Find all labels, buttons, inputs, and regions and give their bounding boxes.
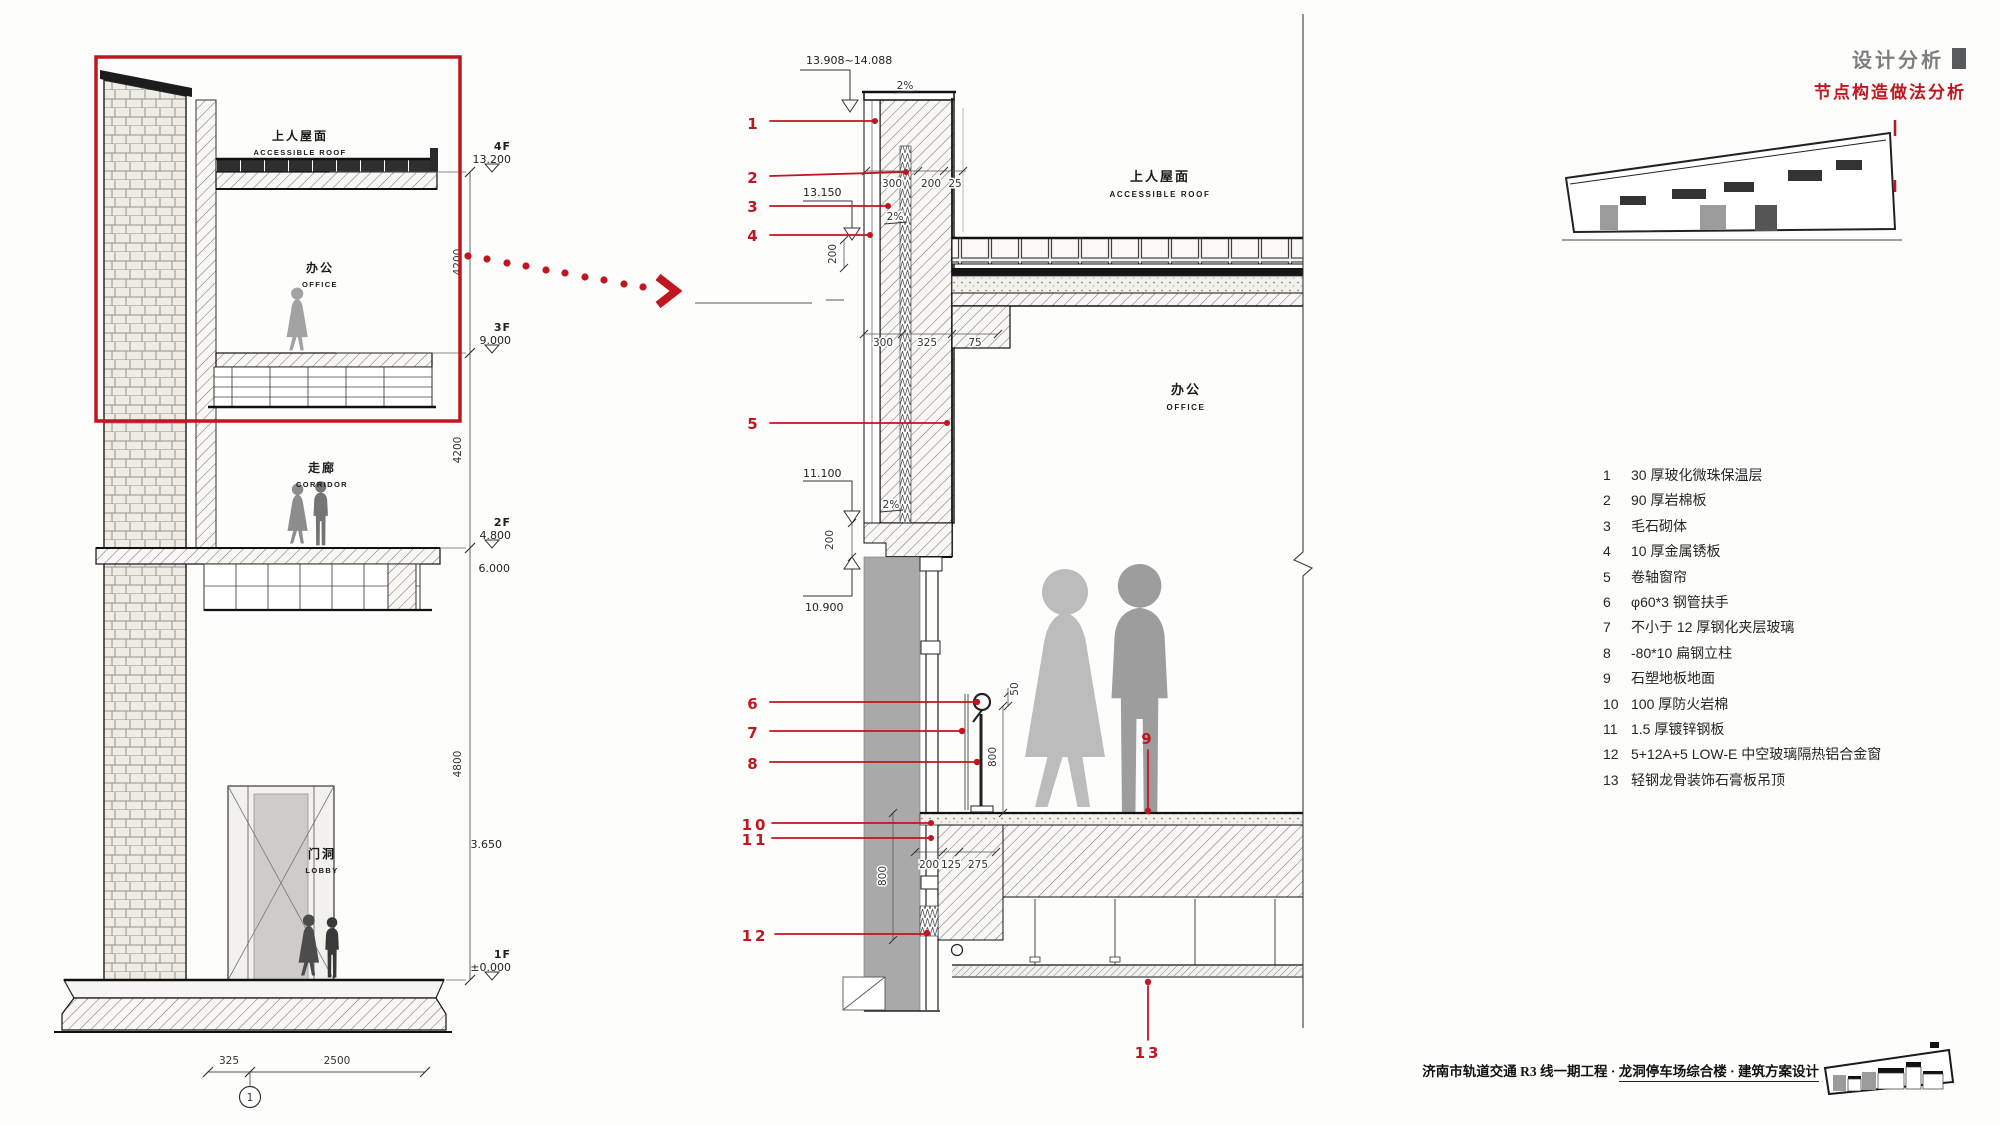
legend-item: 130 厚玻化微珠保温层 xyxy=(1603,467,1881,492)
legend-item: 410 厚金属锈板 xyxy=(1603,543,1881,568)
window-assembly xyxy=(843,557,942,1011)
svg-text:4: 4 xyxy=(747,227,760,245)
roller-blind xyxy=(864,557,920,1011)
svg-text:9: 9 xyxy=(1141,730,1154,748)
figure-detail-woman xyxy=(1025,569,1105,807)
dim-2500: 2500 xyxy=(324,1055,351,1067)
legend-item: 9石塑地板地面 xyxy=(1603,670,1881,695)
dim-parapet-height: 200 xyxy=(827,236,848,272)
project-title-part1: 济南市轨道交通 R3 线一期工程 · xyxy=(1422,1064,1615,1079)
label-lobby-en: LOBBY xyxy=(305,866,338,875)
svg-text:800: 800 xyxy=(877,866,889,886)
svg-text:200: 200 xyxy=(921,178,941,190)
svg-text:800: 800 xyxy=(987,747,999,767)
dim-rail-offset: 50 xyxy=(1004,682,1021,710)
label-corridor-en: CORRIDOR xyxy=(296,480,348,489)
axis-label: 1 xyxy=(247,1092,254,1104)
figure-corridor-man xyxy=(313,481,327,545)
svg-text:13.150: 13.150 xyxy=(803,186,842,199)
svg-text:325: 325 xyxy=(917,337,937,349)
svg-text:12: 12 xyxy=(742,927,769,945)
figure-detail-man xyxy=(1112,564,1168,813)
dim-story-3: 4800 xyxy=(452,751,464,778)
inner-wall-leaf xyxy=(196,100,216,554)
label-lobby-cn: 门洞 xyxy=(308,846,336,861)
svg-text:50: 50 xyxy=(1009,682,1021,695)
dim-story-2: 4200 xyxy=(452,437,464,464)
svg-text:6: 6 xyxy=(747,695,760,713)
svg-text:13: 13 xyxy=(1135,1044,1162,1062)
label-corridor-cn: 走廊 xyxy=(308,460,336,475)
legend-item: 13轻钢龙骨装饰石膏板吊顶 xyxy=(1603,772,1881,797)
svg-text:8: 8 xyxy=(747,755,760,773)
left-section-drawing: 上人屋面 ACCESSIBLE ROOF 办公 OFFICE 走廊 CORRID… xyxy=(54,57,844,1108)
level-11100: 11.100 xyxy=(803,467,860,523)
figure-corridor-woman xyxy=(288,484,308,544)
label-roof-cn: 上人屋面 xyxy=(272,128,328,143)
svg-text:4F: 4F xyxy=(494,140,511,153)
drawing-sheet: 上人屋面 ACCESSIBLE ROOF 办公 OFFICE 走廊 CORRID… xyxy=(0,0,2000,1125)
window-lintel xyxy=(864,523,952,557)
svg-text:25: 25 xyxy=(948,178,961,190)
svg-text:11: 11 xyxy=(742,831,769,849)
title-block-square-icon xyxy=(1952,48,1966,69)
dim-window-head: 200 xyxy=(824,519,856,561)
level-mark-1f: 1F ±0.000 xyxy=(446,948,511,980)
svg-text:75: 75 xyxy=(968,337,981,349)
stone-wall xyxy=(100,70,216,998)
project-title-part2: 龙洞停车场综合楼 · 建筑方案设计 xyxy=(1619,1064,1819,1082)
legend-item: 10100 厚防火岩棉 xyxy=(1603,696,1881,721)
legend-item: 290 厚岩棉板 xyxy=(1603,492,1881,517)
svg-text:300: 300 xyxy=(882,178,902,190)
callout-7: 7 xyxy=(747,724,965,742)
svg-text:2: 2 xyxy=(747,169,760,187)
callout-13: 13 xyxy=(1135,979,1162,1062)
footer-building-logo-icon xyxy=(1825,1042,1953,1094)
aux-level-3650: 3.650 xyxy=(471,838,503,851)
label-office-en: OFFICE xyxy=(302,280,338,289)
svg-text:5: 5 xyxy=(747,415,760,433)
detail-section-drawing: 上人屋面 ACCESSIBLE ROOF 办公 OFFICE 13.908~14… xyxy=(742,14,1312,1062)
design-analysis-header: 设计分析 节点构造做法分析 xyxy=(1814,44,1966,103)
aux-level-6000: 6.000 xyxy=(479,562,511,575)
legend-item: 5卷轴窗帘 xyxy=(1603,569,1881,594)
page-subtitle: 节点构造做法分析 xyxy=(1814,78,1966,103)
dim-rail-height: 800 xyxy=(987,702,1007,817)
label-roof-en: ACCESSIBLE ROOF xyxy=(253,148,346,157)
story-dimension-line: 4200 4200 4800 xyxy=(452,167,475,985)
red-dotted-leader-arrow xyxy=(464,252,844,305)
svg-text:200: 200 xyxy=(824,530,836,550)
detail-label-office-cn: 办公 xyxy=(1171,382,1201,397)
svg-text:2F: 2F xyxy=(494,516,511,529)
lobby-door xyxy=(228,786,334,980)
detail-label-roof-cn: 上人屋面 xyxy=(1130,169,1190,184)
legend-item: 125+12A+5 LOW-E 中空玻璃隔热铝合金窗 xyxy=(1603,746,1881,771)
svg-text:3F: 3F xyxy=(494,321,511,334)
project-title-bar: 济南市轨道交通 R3 线一期工程 · 龙洞停车场综合楼 · 建筑方案设计 xyxy=(1404,1060,1819,1080)
plinth xyxy=(54,980,452,1032)
floor-assembly xyxy=(920,813,1303,977)
svg-text:2%: 2% xyxy=(897,80,914,92)
callout-1: 1 xyxy=(747,115,878,133)
svg-text:200: 200 xyxy=(919,859,939,871)
mini-elevation-sketch xyxy=(1562,120,1902,240)
floor-slab-3f xyxy=(208,353,436,407)
slab-edge-beam xyxy=(938,825,1003,940)
svg-text:10.900: 10.900 xyxy=(805,601,844,614)
svg-text:7: 7 xyxy=(747,724,760,742)
legend-item: 7不小于 12 厚钢化夹层玻璃 xyxy=(1603,619,1881,644)
bottom-dimension-line: 325 2500 xyxy=(203,1055,430,1077)
level-mark-3f: 3F 9.000 xyxy=(336,321,511,353)
svg-text:13.908~14.088: 13.908~14.088 xyxy=(806,54,892,67)
material-legend: 130 厚玻化微珠保温层 290 厚岩棉板 3毛石砌体 410 厚金属锈板 5卷… xyxy=(1603,467,1881,797)
roof-assembly xyxy=(952,238,1303,348)
legend-item: 3毛石砌体 xyxy=(1603,518,1881,543)
svg-text:200: 200 xyxy=(827,244,839,264)
suspended-ceiling xyxy=(952,965,1303,977)
svg-text:300: 300 xyxy=(873,337,893,349)
level-13150: 13.150 xyxy=(803,186,860,240)
detail-label-office-en: OFFICE xyxy=(1167,403,1206,412)
svg-text:2%: 2% xyxy=(887,211,904,223)
svg-text:1F: 1F xyxy=(494,948,511,961)
detail-label-roof-en: ACCESSIBLE ROOF xyxy=(1110,190,1211,199)
svg-text:11.100: 11.100 xyxy=(803,467,842,480)
level-mark-2f: 2F 4.800 xyxy=(440,516,511,548)
page-title: 设计分析 xyxy=(1852,44,1944,73)
arrowhead-chevron-icon xyxy=(658,277,676,305)
svg-text:125: 125 xyxy=(941,859,961,871)
legend-item: 6φ60*3 钢管扶手 xyxy=(1603,594,1881,619)
svg-text:3: 3 xyxy=(747,198,760,216)
exterior-wall xyxy=(862,92,963,557)
axis-bubble: 1 xyxy=(240,1072,261,1108)
dim-story-1: 4200 xyxy=(452,249,464,276)
figure-3f-woman xyxy=(287,288,308,351)
label-office-cn: 办公 xyxy=(306,260,334,275)
legend-item: 111.5 厚镀锌钢板 xyxy=(1603,721,1881,746)
level-10900: 10.900 xyxy=(803,557,860,614)
svg-text:1: 1 xyxy=(747,115,760,133)
svg-text:275: 275 xyxy=(968,859,988,871)
svg-text:2%: 2% xyxy=(883,499,900,511)
dim-325: 325 xyxy=(219,1055,239,1067)
legend-item: 8-80*10 扁钢立柱 xyxy=(1603,645,1881,670)
